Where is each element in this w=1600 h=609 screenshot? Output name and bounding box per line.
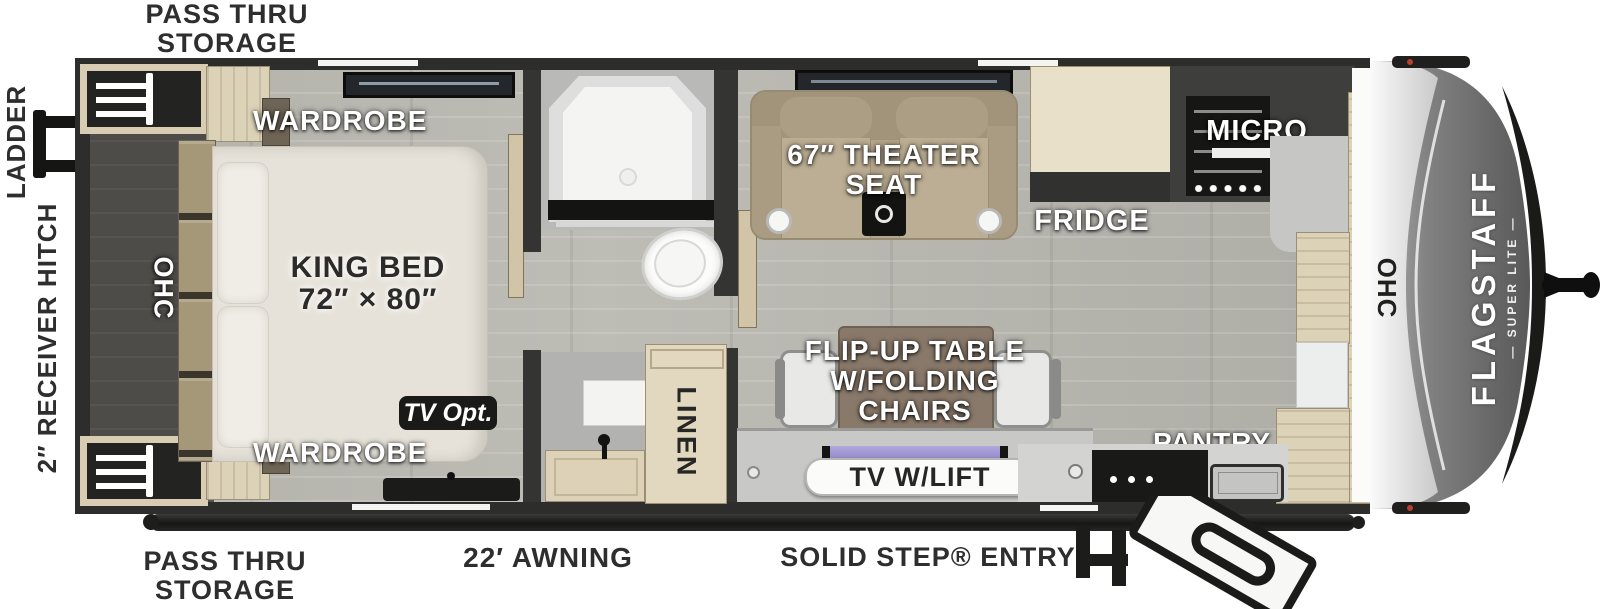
front-upper-cabinet [1296,232,1350,344]
clearance-light [1407,59,1413,65]
cabinet-screw [747,466,760,479]
top-wall-window [318,60,418,66]
awning-end-cap [143,514,159,530]
label-line: SEAT [760,170,1008,200]
label-line: PASS THRU [125,547,325,576]
label-line: 72″ × 80″ [268,284,468,316]
label-line: KING BED [268,252,468,284]
label-linen: LINEN [671,387,700,478]
optional-tv [383,478,520,501]
pillow [217,306,269,448]
label-ladder: LADDER [2,85,30,199]
label-flip-up-table: FLIP-UP TABLE W/FOLDING CHAIRS [790,336,1040,427]
vanity-sink [545,450,645,502]
label-fridge: FRIDGE [1022,206,1162,237]
label-receiver-hitch: 2″ RECEIVER HITCH [33,203,61,474]
clearance-light [1407,505,1413,511]
tv-opt-badge: TV Opt. [399,396,497,430]
vanity-mirror [583,380,651,426]
headboard-ohc-cabinets [178,140,216,462]
brand-sub-logo: — SUPER LITE — [1505,215,1519,358]
label-pass-thru-storage-top: PASS THRU STORAGE [127,0,327,58]
label-line: PASS THRU [127,0,327,29]
counter-knob [1068,464,1083,479]
label-awning: 22′ AWNING [438,543,658,573]
label-line: W/FOLDING [790,366,1040,396]
faucet-stem [602,443,607,459]
label-pass-thru-storage-bottom: PASS THRU STORAGE [125,547,325,605]
pass-thru-compartment-top [80,64,208,134]
bottom-wall-window [352,504,490,510]
bedroom-window-top [343,72,515,98]
tv-lift-pill: TV W/LIFT [805,458,1035,496]
label-line: 67″ THEATER [760,140,1008,170]
bath-wall-left-lower [523,350,541,502]
shower-door [548,200,714,220]
label-ohc-front: OHC [1373,258,1401,319]
fridge-cabinet [1030,66,1172,174]
bath-wall-left-upper [523,70,541,252]
hitch-jack-icon [1542,272,1600,298]
label-ohc-bedroom: OHC [148,257,177,320]
brand-logo: FLAGSTAFF [1465,168,1503,407]
cupholder-icon [766,208,792,234]
label-wardrobe-top: WARDROBE [253,106,423,136]
label-tv-opt: TV Opt. [404,399,493,428]
label-theater-seat: 67″ THEATER SEAT [760,140,1008,200]
solid-step-icon [1050,496,1350,609]
pillow [217,162,269,304]
label-wardrobe-bottom: WARDROBE [253,438,423,468]
label-line: STORAGE [125,576,325,605]
cupholder-icon [976,208,1002,234]
label-tv-w-lift: TV W/LIFT [850,462,991,493]
bedroom-door [508,134,524,298]
front-wall-panel [1296,342,1348,408]
label-line: CHAIRS [790,396,1040,426]
label-line: FLIP-UP TABLE [790,336,1040,366]
label-solid-step-entry: SOLID STEP® ENTRY [778,543,1078,572]
label-line: STORAGE [127,29,327,58]
label-king-bed: KING BED 72″ × 80″ [268,252,468,317]
griddle-cooktop [1092,450,1208,502]
fridge-cabinet-base [1030,172,1170,202]
rv-floor-plan: PASS THRU STORAGE PASS THRU STORAGE LADD… [0,0,1600,609]
